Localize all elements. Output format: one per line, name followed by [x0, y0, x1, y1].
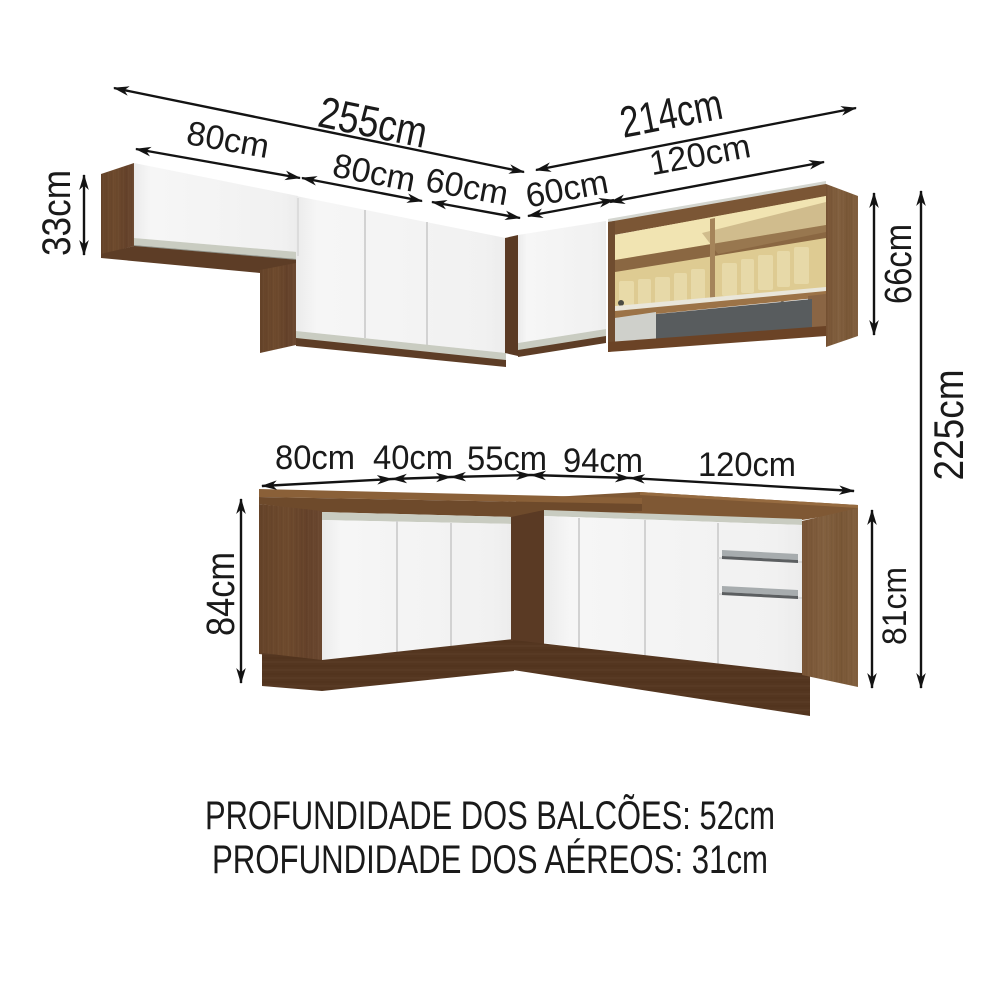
svg-text:84cm: 84cm: [199, 552, 243, 636]
svg-text:40cm: 40cm: [373, 439, 453, 477]
svg-text:PROFUNDIDADE DOS AÉREOS: 31cm: PROFUNDIDADE DOS AÉREOS: 31cm: [212, 837, 768, 882]
svg-text:66cm: 66cm: [878, 224, 920, 304]
svg-text:55cm: 55cm: [467, 440, 547, 478]
svg-text:225cm: 225cm: [925, 370, 972, 481]
svg-text:94cm: 94cm: [563, 442, 643, 480]
svg-text:120cm: 120cm: [698, 446, 796, 484]
svg-text:33cm: 33cm: [35, 170, 79, 256]
svg-text:80cm: 80cm: [275, 439, 355, 477]
svg-text:81cm: 81cm: [876, 567, 914, 645]
svg-text:PROFUNDIDADE DOS BALCÕES: 52cm: PROFUNDIDADE DOS BALCÕES: 52cm: [205, 793, 775, 838]
